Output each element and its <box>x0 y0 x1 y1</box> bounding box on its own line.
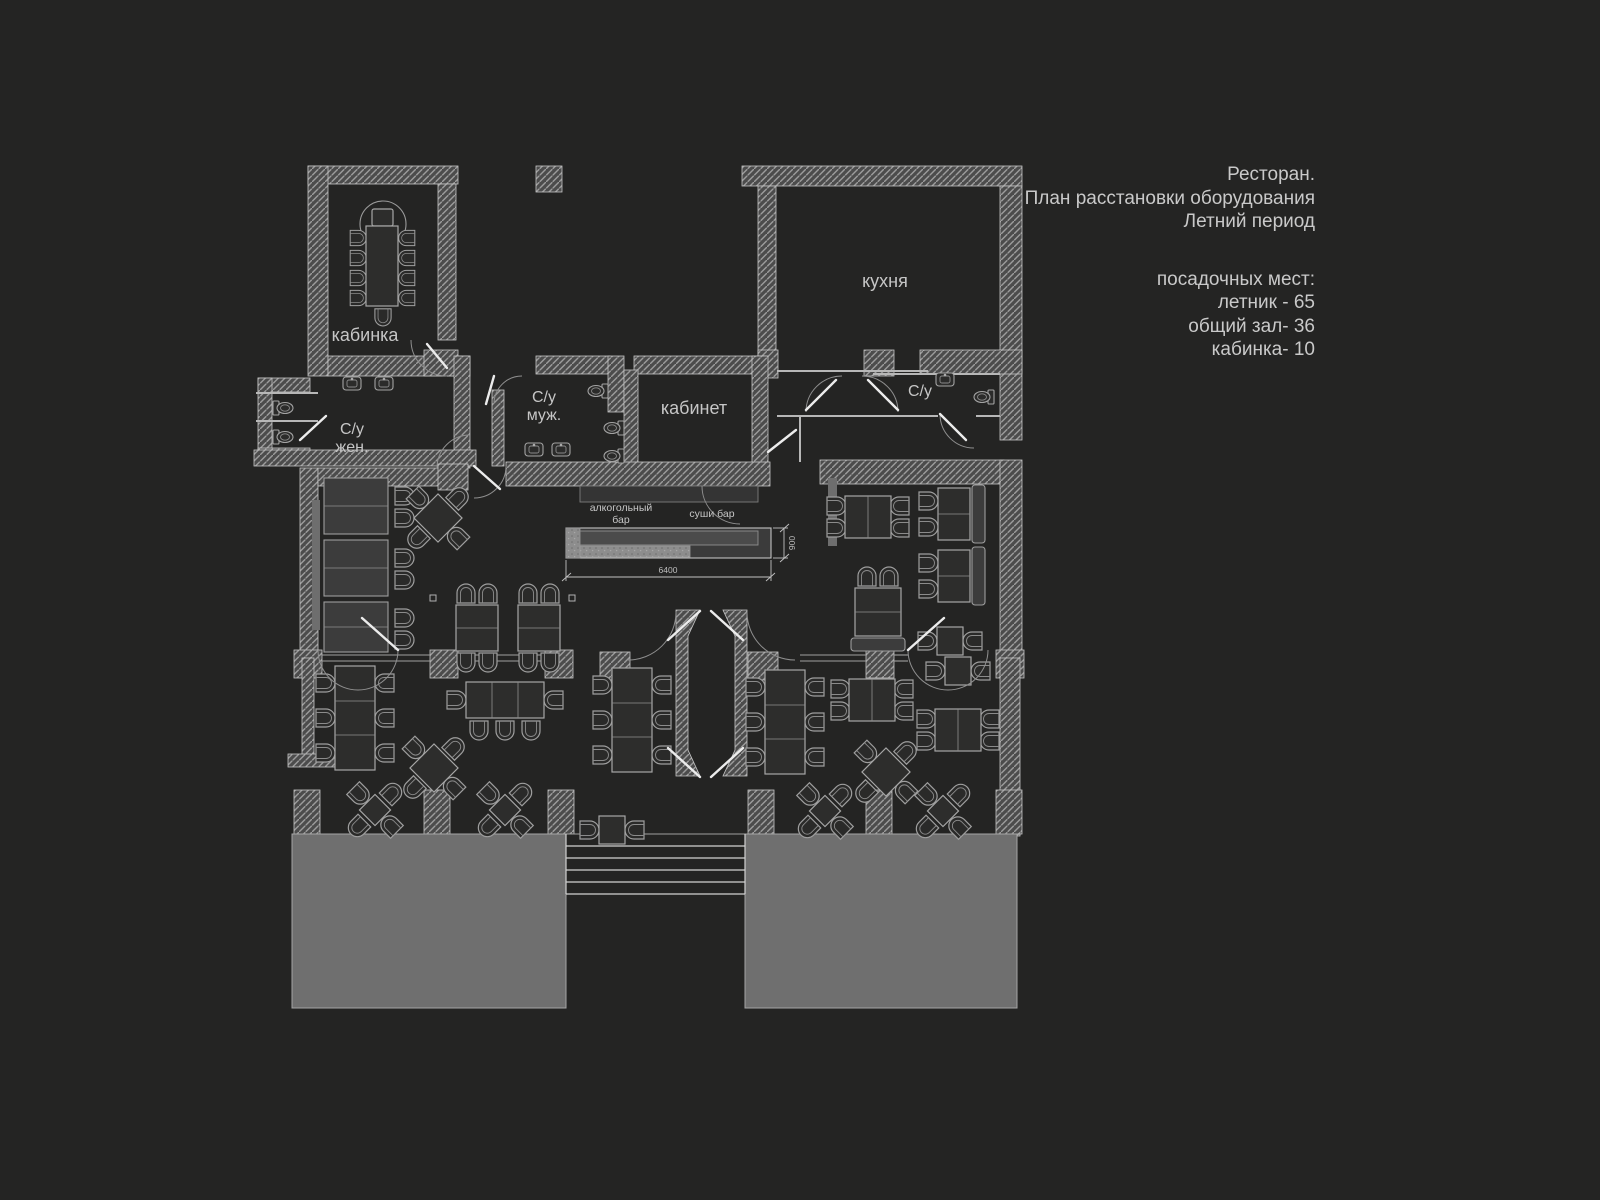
table-6-seats <box>746 670 824 774</box>
room-label-cabin: кабинка <box>332 325 400 345</box>
seat-count-main-hall: общий зал- 36 <box>1025 315 1315 339</box>
room-label-wc-men-1: С/у <box>532 389 556 406</box>
banquette-seating <box>312 478 414 652</box>
terrace-pad-right <box>745 834 1017 1008</box>
floor-plan-drawing: кабинка кухня С/у муж. С/у жен. С/у каби… <box>0 0 1600 1200</box>
booth-table <box>851 567 905 651</box>
alcohol-bar-counter <box>580 546 690 557</box>
toilet-icon <box>604 421 624 435</box>
table-4-seats <box>518 584 560 672</box>
table-4-seats <box>917 709 999 751</box>
terrace-furniture <box>316 657 999 857</box>
room-label-wc-men-2: муж. <box>527 407 562 424</box>
floor-marker <box>569 595 575 601</box>
dimension-bar-length: 6400 <box>659 565 678 575</box>
sink-icon <box>375 377 393 390</box>
seat-count-terrace: летник - 65 <box>1025 291 1315 315</box>
info-panel: Ресторан. План расстановки оборудования … <box>1025 163 1315 362</box>
vestibule-wall-left <box>676 610 700 776</box>
dimension-bar-depth: 900 <box>787 536 797 550</box>
sink-icon <box>552 443 570 456</box>
table-2-seats <box>926 657 990 685</box>
booth-table <box>919 547 985 605</box>
room-label-wc-kitchen: С/у <box>908 383 932 400</box>
booth-table <box>919 485 985 543</box>
terrace-pad-left <box>292 834 566 1008</box>
room-label-wc-women-1: С/у <box>340 421 364 438</box>
room-label-office: кабинет <box>661 398 727 418</box>
table-4-seats <box>456 584 498 672</box>
sheet-title-line-1: Ресторан. <box>1025 163 1315 187</box>
terrace-pads <box>292 834 1017 1008</box>
label-alcohol-bar-1: алкогольный <box>590 502 653 514</box>
table-4-seats <box>831 679 913 721</box>
toilet-icon <box>604 449 624 463</box>
toilet-icon <box>588 384 608 398</box>
table-6-seats <box>593 668 671 772</box>
table-4-seats <box>827 496 909 538</box>
seat-count-block: посадочных мест: летник - 65 общий зал- … <box>1025 268 1315 362</box>
toilet-icon <box>273 430 293 444</box>
label-sushi-bar: суши бар <box>689 508 734 520</box>
room-label-wc-women-2: жен. <box>336 439 369 456</box>
room-label-kitchen: кухня <box>862 271 908 291</box>
bar-top <box>580 531 758 545</box>
column <box>536 166 562 192</box>
sink-icon <box>936 373 954 386</box>
sheet-title-line-2: План расстановки оборудования <box>1025 187 1315 211</box>
back-bar-counter <box>580 486 758 502</box>
vestibule-wall-right <box>723 610 747 776</box>
entrance-stairs <box>566 834 745 894</box>
seat-count-cabin: кабинка- 10 <box>1025 338 1315 362</box>
sink-icon <box>343 377 361 390</box>
table-5-seats <box>447 682 563 740</box>
label-alcohol-bar-2: бар <box>612 514 630 526</box>
toilet-icon <box>273 401 293 415</box>
seat-count-header: посадочных мест: <box>1025 268 1315 292</box>
toilet-icon <box>974 390 994 404</box>
cabin-room-furniture <box>350 201 415 326</box>
table-2-seats <box>580 816 644 844</box>
sink-icon <box>525 443 543 456</box>
floor-marker <box>430 595 436 601</box>
sheet-title-line-3: Летний период <box>1025 210 1315 234</box>
restaurant-floor-plan-sheet: кабинка кухня С/у муж. С/у жен. С/у каби… <box>0 0 1600 1200</box>
